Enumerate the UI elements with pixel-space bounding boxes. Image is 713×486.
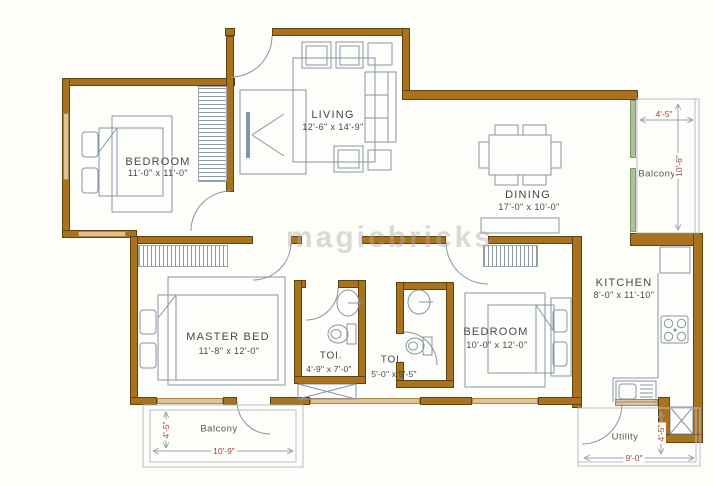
room-label-master: MASTER BED	[186, 331, 270, 343]
dim-balcony-bottom-height: 4'-5"	[161, 420, 171, 441]
kitchen-counter	[613, 247, 690, 402]
dim-utility-width: 9'-0"	[624, 453, 645, 463]
room-dims-bedroom2: 10'-0" x 12'-0"	[466, 340, 527, 350]
room-label-toilet1: TOI.	[320, 351, 342, 362]
room-label-living: LIVING	[311, 109, 354, 121]
dim-utility-height: 4'-5"	[656, 423, 666, 444]
room-label-utility: Utility	[612, 432, 639, 443]
room-label-bedroom2: BEDROOM	[463, 326, 528, 338]
dim-balcony-bottom-width: 10'-9"	[211, 446, 237, 456]
dim-balcony-right-width: 4'-5"	[654, 109, 675, 119]
room-label-kitchen: KITCHEN	[596, 277, 653, 289]
watermark: magicbricks	[286, 221, 494, 255]
tv-unit	[240, 90, 306, 174]
room-dims-bedroom1: 11'-0" x 11'-0"	[128, 168, 188, 178]
room-dims-toilet2: 5'-0" x 5'-5"	[371, 369, 416, 379]
toilet1-fixtures	[328, 290, 362, 344]
room-label-bedroom1: BEDROOM	[125, 156, 190, 168]
duct-shaft	[298, 384, 693, 434]
room-label-balcony-bottom: Balcony	[200, 424, 237, 435]
sofa-set	[293, 42, 396, 172]
room-label-toilet2: TOI.	[381, 355, 403, 366]
room-label-balcony-right: Balcony	[638, 169, 675, 180]
room-dims-dining: 17'-0" x 10'-0"	[498, 202, 559, 212]
dining-table	[479, 125, 561, 233]
toilet2-fixtures	[406, 290, 433, 355]
room-dims-toilet1: 4'-9" x 7'-0"	[306, 364, 351, 374]
room-label-dining: DINING	[505, 189, 551, 201]
dim-balcony-right-height: 10'-6"	[674, 153, 684, 179]
room-dims-living: 12'-6" x 14'-9"	[302, 122, 363, 132]
floor-plan: magicbricks BEDROOM 11'-0" x 11'-0" LIVI…	[0, 0, 713, 486]
room-dims-master: 11'-8" x 12'-0"	[199, 346, 260, 356]
room-dims-kitchen: 8'-0" x 11'-10"	[594, 290, 655, 300]
